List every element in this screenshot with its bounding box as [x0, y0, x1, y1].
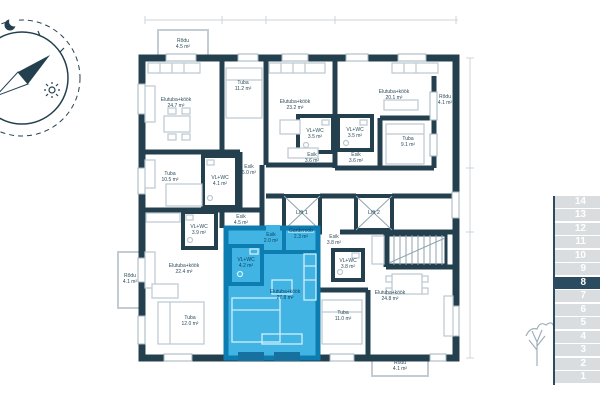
room-label-living-tm: Elutuba+köök23.2 m² [280, 99, 310, 112]
room-label-hall-br: Esik3.8 m² [327, 234, 341, 247]
compass-rose-icon [0, 17, 80, 137]
room-label-balcony-right: Rõdu4.1 m² [438, 94, 452, 107]
room-label-bath-tr: VL+WC3.5 m² [346, 127, 363, 140]
floor-row-2[interactable]: 2 [555, 358, 600, 370]
room-label-bedroom-bl: Tuba12.0 m² [182, 315, 199, 328]
room-label-living-hl: Elutuba+köök27.8 m² [270, 289, 300, 302]
floor-row-12[interactable]: 12 [555, 223, 600, 235]
room-label-bath-ml: VL+WC4.1 m² [211, 175, 228, 188]
moon-icon [5, 17, 20, 31]
floor-row-6[interactable]: 6 [555, 304, 600, 316]
floor-selector: 1413121110987654321 [553, 196, 600, 385]
room-label-bedroom-ml: Tuba10.5 m² [162, 171, 179, 184]
room-label-bath-br: VL+WC3.8 m² [339, 258, 356, 271]
floor-row-14[interactable]: 14 [555, 196, 600, 208]
sun-icon [44, 82, 60, 98]
room-label-bedroom-br: Tuba11.0 m² [335, 310, 352, 323]
room-label-hall-bl: Esik4.5 m² [234, 214, 248, 227]
room-label-balcony-bottom: Rõdu4.1 m² [393, 360, 407, 373]
floor-row-11[interactable]: 11 [555, 236, 600, 248]
room-label-living-tr: Elutuba+köök20.1 m² [379, 89, 409, 102]
floor-row-4[interactable]: 4 [555, 331, 600, 343]
room-label-living-bl: Elutuba+köök22.4 m² [169, 263, 199, 276]
floor-row-8[interactable]: 8 [555, 277, 600, 289]
room-label-closet-hl: Garderoob2.3 m² [289, 228, 313, 241]
floor-row-5[interactable]: 5 [555, 317, 600, 329]
floor-row-13[interactable]: 13 [555, 209, 600, 221]
room-label-bath-tm: VL+WC3.5 m² [306, 128, 323, 141]
room-label-bedroom-tr: Tuba9.1 m² [401, 136, 415, 149]
floor-row-1[interactable]: 1 [555, 371, 600, 383]
room-label-bath-hl: VL+WC4.2 m² [237, 257, 254, 270]
room-label-living-tl: Elutuba+köök24.7 m² [161, 97, 191, 110]
room-label-hall-ml: Esik6.0 m² [242, 164, 256, 177]
room-label-hall-tr: Esik3.6 m² [349, 152, 363, 165]
room-label-bedroom-tl: Tuba11.2 m² [235, 80, 252, 93]
room-label-hall-tm: Esik3.6 m² [305, 152, 319, 165]
floor-row-9[interactable]: 9 [555, 263, 600, 275]
tree-icon [526, 323, 554, 366]
floor-row-3[interactable]: 3 [555, 344, 600, 356]
floor-row-10[interactable]: 10 [555, 250, 600, 262]
room-label-hall-hl: Esik2.0 m² [264, 232, 278, 245]
lift-2-label: Lift 2 [368, 210, 380, 216]
room-label-living-br: Elutuba+köök24.8 m² [375, 290, 405, 303]
room-label-bath-bl: VL+WC3.9 m² [190, 224, 207, 237]
floor-row-7[interactable]: 7 [555, 290, 600, 302]
lift-1-label: Lift 1 [296, 210, 308, 216]
room-label-balcony-left: Rõdu4.1 m² [123, 273, 137, 286]
staircase [388, 235, 446, 265]
room-label-balcony-top: Rõdu4.5 m² [176, 38, 190, 51]
